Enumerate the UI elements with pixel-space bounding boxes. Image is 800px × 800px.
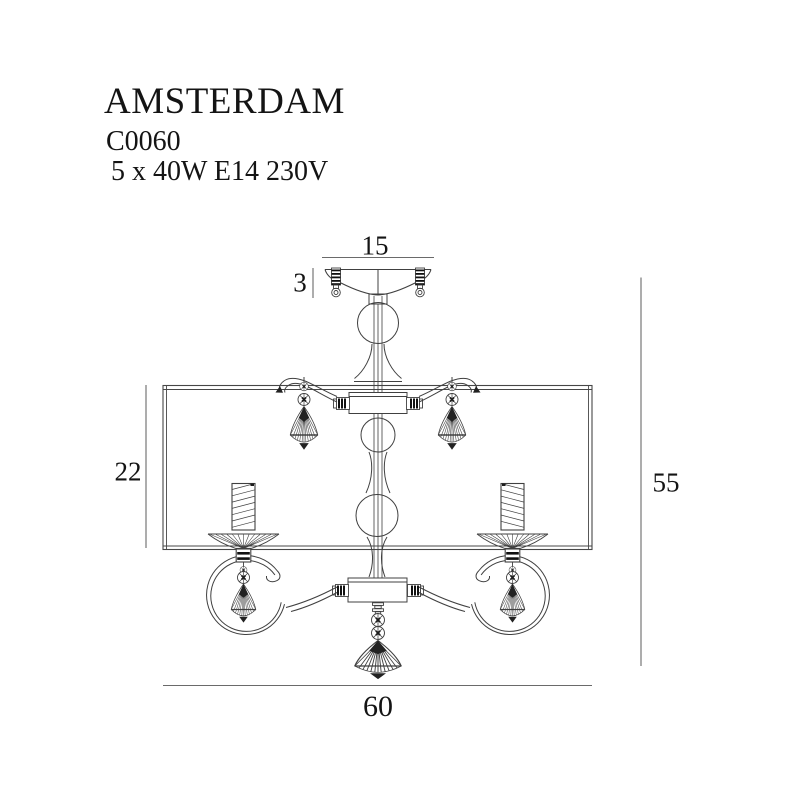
dim-fixture-width-label: 60 — [363, 690, 393, 724]
dim-canopy-width-label: 15 — [362, 231, 389, 262]
canopy-bead-strand — [416, 268, 425, 297]
dim-canopy-height-label: 3 — [293, 268, 307, 299]
product-spec-sheet: AMSTERDAM C0060 5 x 40W E14 230V — [0, 0, 800, 800]
central-column — [333, 270, 424, 602]
bottom-finial — [355, 603, 401, 679]
dimension-lines — [146, 258, 641, 686]
crystal-drop — [355, 641, 401, 680]
left-arms — [207, 377, 337, 635]
glass-sphere — [356, 495, 398, 537]
upper-hub — [349, 393, 407, 414]
canopy-bead-strand — [332, 268, 341, 297]
dim-shade-height-label: 22 — [115, 457, 142, 488]
right-arms — [419, 377, 549, 635]
chandelier-technical-drawing — [0, 0, 800, 800]
dim-fixture-height-label: 55 — [653, 468, 680, 499]
